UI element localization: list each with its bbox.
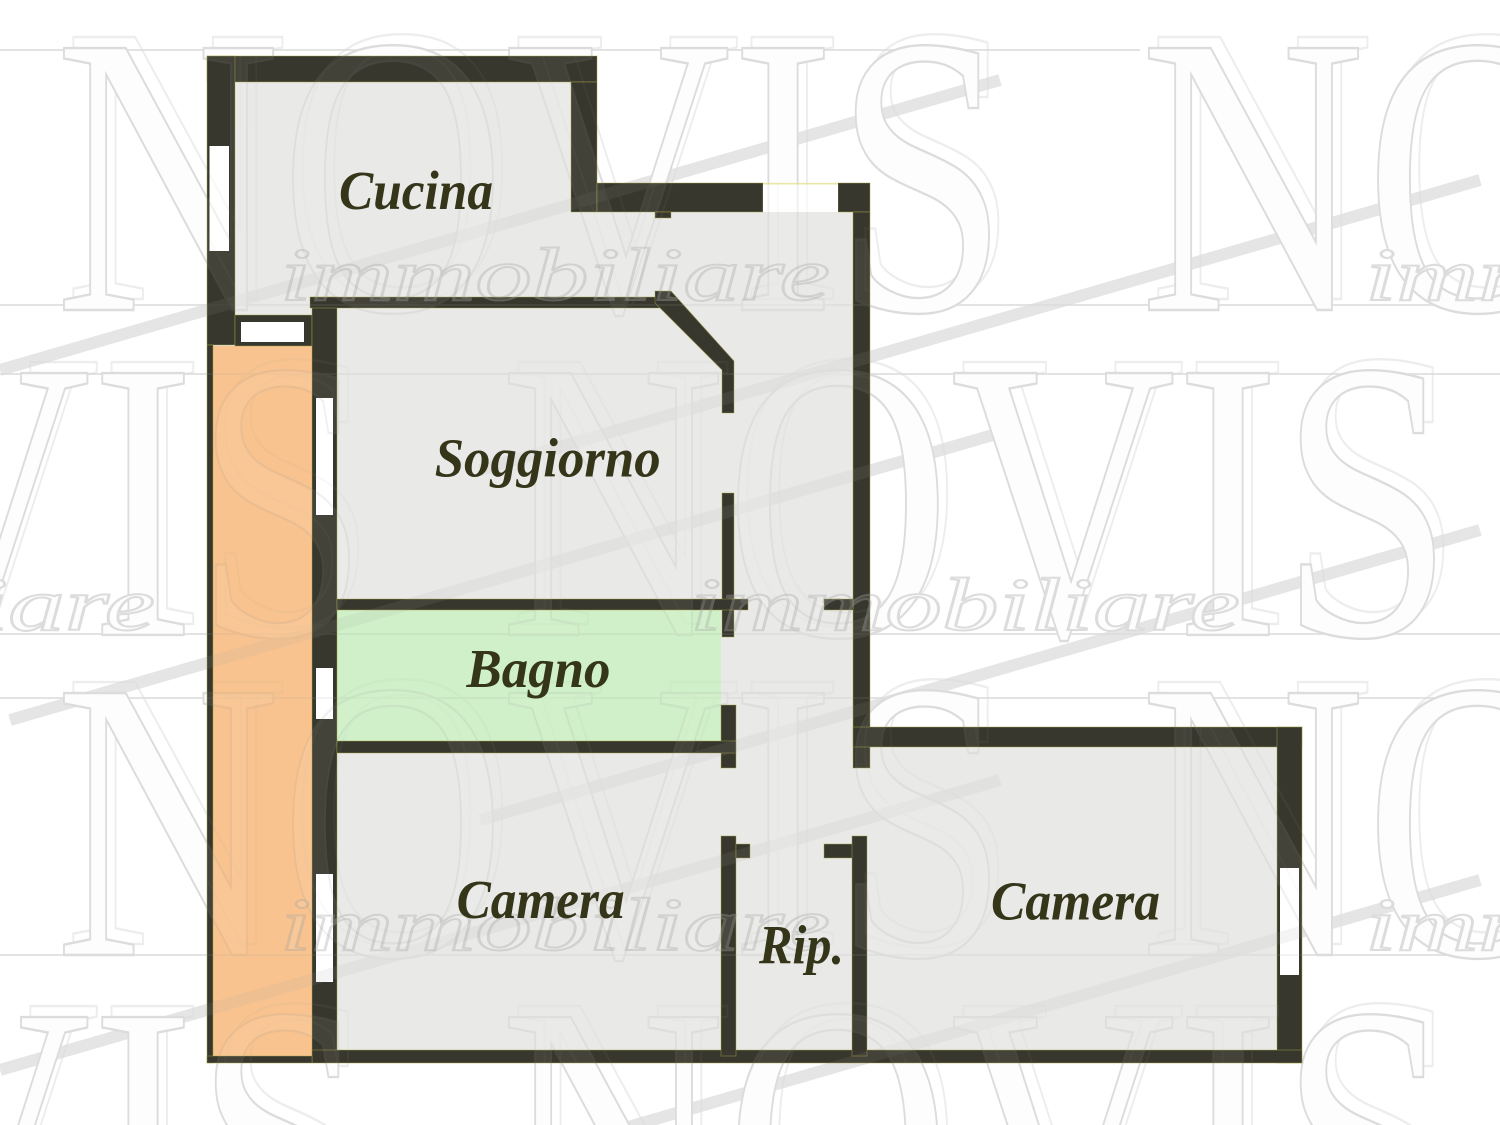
svg-text:Rip.: Rip.	[758, 914, 844, 975]
svg-text:Camera: Camera	[457, 869, 625, 930]
svg-text:Cucina: Cucina	[339, 160, 493, 221]
svg-text:Soggiorno: Soggiorno	[435, 427, 661, 488]
svg-text:Bagno: Bagno	[466, 638, 611, 699]
svg-text:Camera: Camera	[991, 870, 1160, 931]
